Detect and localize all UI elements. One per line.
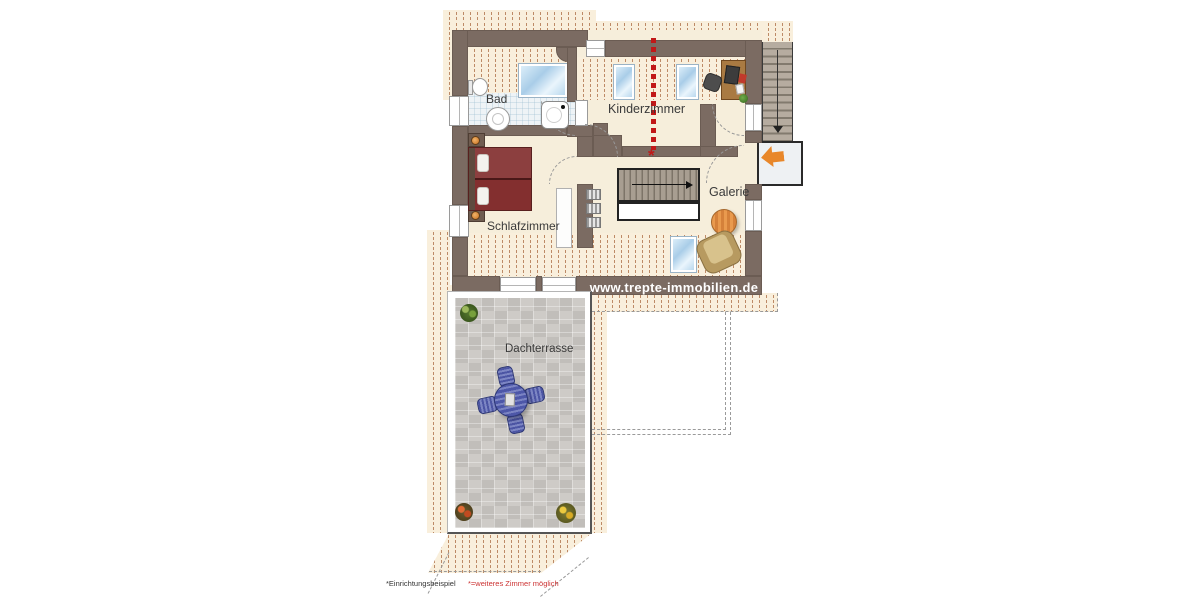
- lamp-bottom-icon: [471, 211, 480, 220]
- radiator-icon-2: [586, 203, 601, 214]
- label-bedroom: Schlafzimmer: [487, 219, 560, 233]
- wall-right-2: [745, 131, 762, 143]
- footnote-example: *Einrichtungsbeispiel: [386, 579, 456, 588]
- shower-basin-icon: [546, 107, 562, 123]
- sink-basin-icon: [492, 113, 504, 125]
- roof-hatch-top-right: [762, 21, 793, 42]
- shower-drain-icon: [561, 105, 565, 109]
- desk-paper-icon: [735, 83, 745, 94]
- lamp-top-icon: [471, 136, 480, 145]
- armchair-seat: [702, 233, 735, 265]
- radiator-icon-3: [586, 217, 601, 228]
- label-kids-room: Kinderzimmer: [608, 102, 685, 116]
- terrace-table-magazine-icon: [505, 393, 515, 406]
- watermark-text: www.trepte-immobilien.de: [586, 280, 762, 295]
- kidsroom-skylight-1: [614, 65, 634, 99]
- internal-staircase-direction-line: [632, 184, 686, 185]
- footnote-extra-room: *=weiteres Zimmer möglich: [468, 579, 559, 588]
- window-right-1: [745, 104, 762, 131]
- entrance-landing: [757, 141, 803, 186]
- desk-plant-icon: [739, 94, 748, 103]
- roof-hatch-fan: [428, 533, 592, 573]
- pillow-top-icon: [477, 154, 489, 172]
- terrace-dining-set: [471, 360, 552, 441]
- internal-staircase-arrow-icon: [686, 181, 693, 189]
- window-left-2: [449, 205, 469, 237]
- wall-left-1: [452, 30, 468, 96]
- terrace-plant-bottom-left-icon: [455, 503, 473, 521]
- bath-skylight: [519, 64, 567, 97]
- radiator-icon-1: [586, 189, 601, 200]
- bed-mattress-split: [475, 178, 531, 180]
- optional-room-divider-marker: *: [648, 146, 655, 166]
- optional-room-divider-line: [651, 38, 656, 150]
- kidsroom-skylight-2: [677, 65, 698, 99]
- staircase-down-arrow-icon: [773, 126, 783, 133]
- roof-hatch-band-right: [592, 293, 778, 312]
- wall-left-3: [452, 237, 468, 276]
- label-gallery: Galerie: [709, 185, 749, 199]
- floorplan-page: { "plan": { "labels": { "bathroom": "Bad…: [0, 0, 1200, 600]
- wall-top-kidsroom: [605, 40, 762, 57]
- bed-icon: [468, 147, 532, 211]
- wall-left-2: [452, 126, 468, 205]
- wall-right-4: [745, 231, 762, 276]
- pillow-bottom-icon: [477, 187, 489, 205]
- terrace-plant-bottom-right-icon: [556, 503, 576, 523]
- roof-dashed-edge-bottom: [429, 571, 541, 572]
- wardrobe-icon: [556, 188, 572, 248]
- window-top: [586, 40, 605, 57]
- wall-right-1: [745, 40, 762, 104]
- terrace-plant-top-left-icon: [460, 304, 478, 322]
- window-right-2: [745, 200, 762, 231]
- wall-bath-right: [567, 47, 577, 102]
- label-roof-terrace: Dachterrasse: [505, 343, 573, 355]
- gallery-railing: [617, 202, 700, 221]
- window-left-1: [449, 96, 469, 126]
- wall-center: [622, 146, 708, 157]
- label-bathroom: Bad: [486, 92, 507, 106]
- roof-outline-dashed-inner: [587, 312, 726, 430]
- gallery-skylight: [671, 237, 696, 272]
- wall-top-bath: [452, 30, 588, 47]
- staircase-direction-line: [777, 50, 778, 126]
